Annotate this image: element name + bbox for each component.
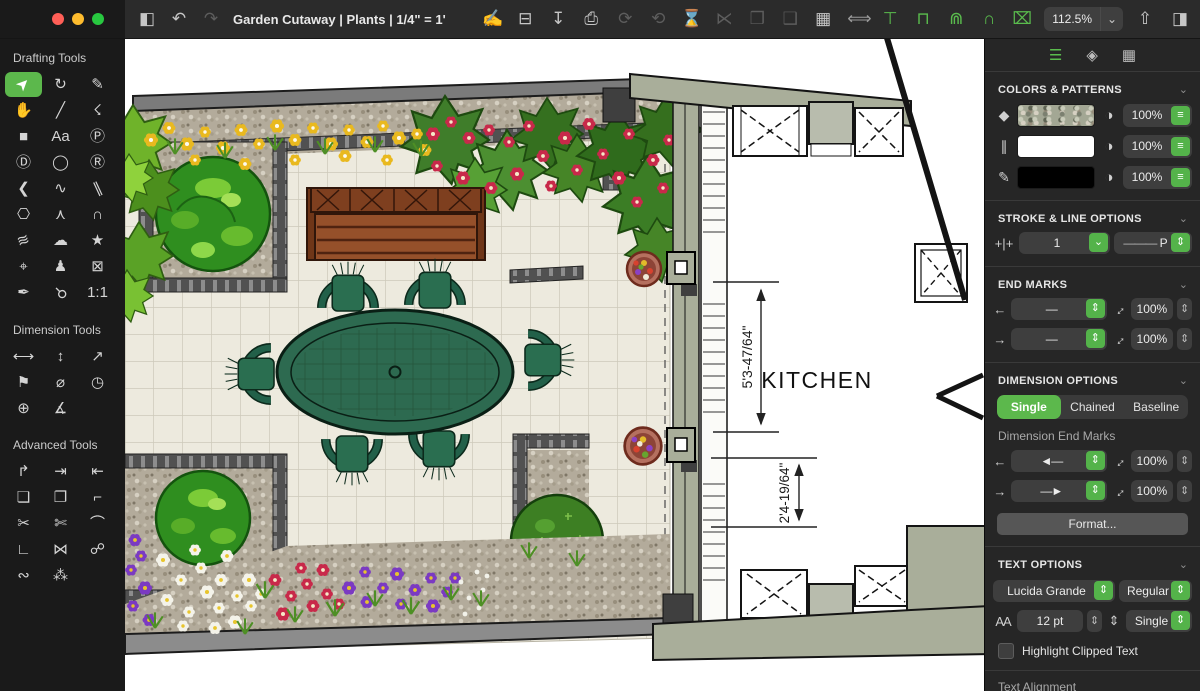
end-marks-header: END MARKS xyxy=(998,279,1067,291)
sidebar-toggle-icon[interactable]: ◧ xyxy=(137,1,157,37)
tool-icon: ⌐ xyxy=(93,490,102,505)
chevron-down-icon[interactable]: ⌄ xyxy=(1179,212,1188,225)
dim-start-mark-row: ← ◄— ⇕ ↔ 100% ⇕ xyxy=(993,449,1192,473)
dim-finish-mark-row: → —► ⇕ ↔ 100% ⇕ xyxy=(993,479,1192,503)
eyedropper-tool[interactable]: ✒ xyxy=(5,280,42,305)
font-family-select[interactable]: Lucida Grande ⇕ xyxy=(993,580,1115,602)
chevron-tool[interactable]: ❮ xyxy=(5,176,42,201)
contrast-icon[interactable]: ◑ xyxy=(1097,169,1121,186)
stepper-icon[interactable]: ⇕ xyxy=(1086,329,1105,348)
zoom-value: 112.5% xyxy=(1044,12,1100,26)
chevron-down-icon[interactable]: ⌄ xyxy=(1100,7,1123,31)
distribute-tool[interactable]: ⁂ xyxy=(42,563,79,588)
tool-icon: ≋ xyxy=(15,231,32,249)
chevron-down-icon[interactable]: ⌄ xyxy=(1089,233,1108,252)
mode-chained[interactable]: Chained xyxy=(1061,395,1125,419)
app-window: ◧↶↷ Garden Cutaway | Plants | 1/4" = 1' … xyxy=(0,0,1200,691)
stepper-icon[interactable]: ⇕ xyxy=(1086,481,1105,500)
tool-icon: ⌒ xyxy=(90,516,105,531)
text-tool[interactable]: Aa xyxy=(42,124,79,149)
dimension-tools-header: Dimension Tools xyxy=(13,323,125,337)
rotated-rect-tool[interactable]: Ⓡ xyxy=(79,150,116,175)
dimension-over-arc-icon[interactable]: ∩ xyxy=(979,1,999,37)
extend-left-tool[interactable]: ⇥ xyxy=(42,459,79,484)
multi-cut-tool[interactable]: ✄ xyxy=(42,511,79,536)
wooden-bench[interactable] xyxy=(307,188,485,260)
highlight-clipped-checkbox[interactable] xyxy=(998,643,1014,659)
tool-icon: ⇤ xyxy=(91,464,104,479)
tool-icon: ☍ xyxy=(90,542,105,557)
scale-field[interactable]: 100% xyxy=(1131,298,1174,320)
start-end-mark-row: ← — ⇕ ↔ 100% ⇕ xyxy=(993,297,1192,321)
color-swatch[interactable] xyxy=(1017,104,1095,127)
tool-icon: Ⓓ xyxy=(16,155,31,170)
resize-icon[interactable]: ↔ xyxy=(1108,450,1130,472)
tool-icon: ⁂ xyxy=(53,568,68,583)
link-tool[interactable]: ☍ xyxy=(79,537,116,562)
scribble-tool[interactable]: ≋ xyxy=(5,228,42,253)
document-title: Garden Cutaway | Plants | 1/4" = 1' xyxy=(233,12,446,27)
tool-icon: ⊕ xyxy=(17,401,30,416)
diameter-dimension-tool[interactable]: ⌀ xyxy=(42,370,79,395)
text-alignment-label: Text Alignment xyxy=(998,680,1187,691)
stepper-icon[interactable]: ⇕ xyxy=(1086,299,1105,318)
undo-icon[interactable]: ↶ xyxy=(169,1,189,37)
grid-icon[interactable]: ▦ xyxy=(813,1,833,37)
tool-icon: ◷ xyxy=(91,375,104,390)
dimension-end-marks-label: Dimension End Marks xyxy=(998,429,1187,443)
tool-icon: ⋏ xyxy=(55,207,66,222)
open-folder-icon[interactable]: ⊟ xyxy=(515,1,535,37)
horizontal-dimension-tool[interactable]: ⟷ xyxy=(5,344,42,369)
rotate-cw-icon[interactable]: ⟳ xyxy=(615,1,635,37)
tool-icon: ■ xyxy=(19,129,28,144)
minimize-button[interactable] xyxy=(72,13,84,25)
redo-icon[interactable]: ↷ xyxy=(201,1,221,37)
star-tool[interactable]: ★ xyxy=(79,228,116,253)
tool-icon: ↕ xyxy=(57,349,65,364)
polygon-tool[interactable]: ⎔ xyxy=(5,202,42,227)
traffic-lights xyxy=(0,0,125,38)
line-width-icon: +|+ xyxy=(993,236,1015,251)
tool-icon: ◯ xyxy=(52,155,69,170)
print-icon[interactable]: ⎙ xyxy=(581,1,601,37)
opacity-field[interactable]: 100% ≡ xyxy=(1123,135,1192,158)
contrast-icon[interactable]: ◑ xyxy=(1097,138,1121,155)
arrow-icon: ← xyxy=(993,454,1007,469)
opacity-field[interactable]: 100% ≡ xyxy=(1123,166,1192,189)
opacity-slider-button[interactable]: ≡ xyxy=(1171,137,1190,156)
scale-field[interactable]: 100% xyxy=(1131,450,1174,472)
tool-icon: ⌀ xyxy=(56,375,65,390)
tool-icon: ❐ xyxy=(54,490,67,505)
zoom-window-button[interactable] xyxy=(92,13,104,25)
tool-icon: ∾ xyxy=(17,568,30,583)
tool-icon: ✎ xyxy=(91,77,104,92)
tool-icon: ⚲ xyxy=(51,283,69,301)
tab-layers[interactable]: ◈ xyxy=(1084,46,1100,64)
inspector-panel: ☰◈▦ COLORS & PATTERNS ⌄ ◆ ◑ 100% ≡ xyxy=(984,38,1200,691)
tool-icon: ⎔ xyxy=(17,207,30,222)
opacity-slider-button[interactable]: ≡ xyxy=(1171,168,1190,187)
text-options-header: TEXT OPTIONS xyxy=(998,559,1082,571)
finish-end-mark-row: → — ⇕ ↔ 100% ⇕ xyxy=(993,327,1192,351)
mirror-tool[interactable]: ⋈ xyxy=(42,537,79,562)
combine-fill-tool[interactable]: ❏ xyxy=(5,485,42,510)
dimension-xy-icon[interactable]: ⌧ xyxy=(1012,1,1032,37)
fillet-tool[interactable]: ⌒ xyxy=(79,511,116,536)
tool-icon: ⌖ xyxy=(19,259,27,274)
line-tool[interactable]: ╱ xyxy=(42,98,79,123)
tool-icon: ★ xyxy=(91,233,104,248)
dimension-text-icon[interactable]: ⊤ xyxy=(880,1,900,37)
insert-vertex-tool[interactable]: ↱ xyxy=(5,459,42,484)
dimension-mark-select[interactable]: ◄— ⇕ xyxy=(1011,450,1107,472)
reshape-tool[interactable]: ✎ xyxy=(79,72,116,97)
ungroup-icon[interactable]: ❑ xyxy=(780,1,800,37)
position-tool[interactable]: ⌖ xyxy=(5,254,42,279)
tool-icon: Aa xyxy=(51,129,69,144)
dimension-line-icon[interactable]: ⟺ xyxy=(847,1,867,37)
extend-right-tool[interactable]: ⇤ xyxy=(79,459,116,484)
droplet-icon: ◆ xyxy=(993,107,1015,124)
stepper-icon[interactable]: ⇕ xyxy=(1177,480,1192,502)
dimension-options-header: DIMENSION OPTIONS xyxy=(998,375,1118,387)
oval-tool[interactable]: ◯ xyxy=(42,150,79,175)
stepper-icon[interactable]: ⇕ xyxy=(1171,611,1190,630)
no-fill-box-tool[interactable]: ⊠ xyxy=(79,254,116,279)
path-node-tool[interactable]: ⌐ xyxy=(79,485,116,510)
fill-row: ◆ ◑ 100% ≡ xyxy=(993,103,1192,127)
rotate-tool[interactable]: ↻ xyxy=(42,72,79,97)
tools-sidebar: Drafting Tools ➤↻✎✋╱☇■AaⓅⒹ◯Ⓡ❮∿∥⎔⋏∩≋☁★⌖♟⊠… xyxy=(0,38,125,691)
combine-outline-tool[interactable]: ❐ xyxy=(42,485,79,510)
mode-baseline[interactable]: Baseline xyxy=(1124,395,1188,419)
tool-icon: ∟ xyxy=(16,542,31,557)
tool-icon: Ⓟ xyxy=(90,129,105,144)
tool-icon: ╱ xyxy=(56,103,65,118)
end-mark-select[interactable]: — ⇕ xyxy=(1011,328,1107,350)
group-icon[interactable]: ❒ xyxy=(747,1,767,37)
hatch-row: ∥ ◑ 100% ≡ xyxy=(993,134,1192,158)
tool-icon: ❮ xyxy=(17,181,30,196)
arrow-icon: → xyxy=(993,484,1007,499)
line-spacing-select[interactable]: Single ⇕ xyxy=(1126,610,1192,632)
color-swatch[interactable] xyxy=(1017,166,1095,189)
stepper-icon[interactable]: ⇕ xyxy=(1087,610,1102,632)
angled-dimension-tool[interactable]: ⚑ xyxy=(5,370,42,395)
tool-icon: ↱ xyxy=(17,464,30,479)
flip-vertical-icon[interactable]: ⌛ xyxy=(681,1,701,37)
tool-icon: ∩ xyxy=(92,207,103,222)
flower-pot-1[interactable] xyxy=(627,252,661,286)
kitchen-label[interactable]: KITCHEN xyxy=(761,367,872,393)
contrast-icon[interactable]: ◑ xyxy=(1097,107,1121,124)
tool-icon: ∿ xyxy=(54,181,67,196)
flower-pot-2[interactable] xyxy=(625,428,662,465)
dimension-arc-icon[interactable]: ⊓ xyxy=(913,1,933,37)
tool-icon: ∥ xyxy=(91,180,104,197)
scale-field[interactable]: 100% xyxy=(1131,328,1174,350)
tool-icon: ✄ xyxy=(54,516,67,531)
tool-icon: ✒ xyxy=(17,285,30,300)
tool-icon: ⟷ xyxy=(13,349,35,364)
line-spacing-icon: ⇕ xyxy=(1106,613,1122,629)
flip-horizontal-icon[interactable]: ⋉ xyxy=(714,1,734,37)
tool-icon: ✋ xyxy=(14,103,33,118)
dimension-double-arc-icon[interactable]: ⋒ xyxy=(946,1,966,37)
highlight-clipped-label: Highlight Clipped Text xyxy=(1022,644,1138,658)
stepper-icon[interactable]: ⇕ xyxy=(1171,581,1190,600)
opacity-slider-button[interactable]: ≡ xyxy=(1171,106,1190,125)
stepper-icon[interactable]: ⇕ xyxy=(1171,233,1190,252)
dimension-mark-select[interactable]: —► ⇕ xyxy=(1011,480,1107,502)
chevron-down-icon[interactable]: ⌄ xyxy=(1179,278,1188,291)
stepper-icon[interactable]: ⇕ xyxy=(1094,581,1113,600)
stepper-icon[interactable]: ⇕ xyxy=(1086,451,1105,470)
stepper-icon[interactable]: ⇕ xyxy=(1177,328,1192,350)
text-box-tool[interactable]: Ⓟ xyxy=(79,124,116,149)
font-weight-select[interactable]: Regular ⇕ xyxy=(1119,580,1192,602)
stroke-options-header: STROKE & LINE OPTIONS xyxy=(998,213,1142,225)
rectangle-tool[interactable]: ■ xyxy=(5,124,42,149)
radius-dimension-tool[interactable]: ◷ xyxy=(79,370,116,395)
tool-icon: ∡ xyxy=(54,401,67,416)
parallel-line-tool[interactable]: ∥ xyxy=(79,176,116,201)
tool-icon: ⋈ xyxy=(53,542,68,557)
stepper-icon[interactable]: ⇕ xyxy=(1177,450,1192,472)
resize-icon[interactable]: ↔ xyxy=(1108,298,1130,320)
inspector-toggle-icon[interactable]: ◨ xyxy=(1170,1,1190,37)
blob-tool[interactable]: ☁ xyxy=(42,228,79,253)
magnifier-tool[interactable]: ⚲ xyxy=(42,280,79,305)
dimension-label-gap[interactable]: 2'4-19/64" xyxy=(777,462,792,523)
format-button[interactable]: Format... xyxy=(997,513,1188,535)
drawing-canvas[interactable]: 5'3-47/64" 2'4-19/64" KITCHEN xyxy=(125,38,985,691)
tool-icon: ♟ xyxy=(54,259,67,274)
chevron-down-icon[interactable]: ⌄ xyxy=(1179,374,1188,387)
tool-icon: 1:1 xyxy=(87,285,108,300)
drafting-tools-header: Drafting Tools xyxy=(13,51,125,65)
scale-field[interactable]: 100% xyxy=(1131,480,1174,502)
font-size-field[interactable]: 12 pt xyxy=(1017,610,1083,632)
arrow-icon: ← xyxy=(993,302,1007,317)
actual-size-tool[interactable]: 1:1 xyxy=(79,280,116,305)
tool-icon: Ⓡ xyxy=(90,155,105,170)
opacity-field[interactable]: 100% ≡ xyxy=(1123,104,1192,127)
import-icon[interactable]: ↧ xyxy=(548,1,568,37)
share-icon[interactable]: ⇧ xyxy=(1135,1,1155,37)
tab-library[interactable]: ▦ xyxy=(1120,46,1138,64)
curve-tool[interactable]: ∿ xyxy=(42,176,79,201)
center-dimension-tool[interactable]: ⊕ xyxy=(5,396,42,421)
stepper-icon[interactable]: ⇕ xyxy=(1177,298,1192,320)
angle-dimension-tool[interactable]: ∡ xyxy=(42,396,79,421)
rotate-ccw-icon[interactable]: ⟲ xyxy=(648,1,668,37)
dimension-mode-segment: SingleChainedBaseline xyxy=(997,395,1188,419)
close-button[interactable] xyxy=(52,13,64,25)
advanced-tools-header: Advanced Tools xyxy=(13,438,125,452)
arc-tool[interactable]: ∩ xyxy=(79,202,116,227)
polyline-tool[interactable]: ☇ xyxy=(79,98,116,123)
pencil-icon: ✎ xyxy=(993,169,1015,186)
tool-icon: ⇥ xyxy=(54,464,67,479)
dimension-label-vertical[interactable]: 5'3-47/64" xyxy=(739,326,755,389)
tool-icon: ❏ xyxy=(17,490,30,505)
tool-icon: ☇ xyxy=(93,103,102,118)
tool-icon: ⚑ xyxy=(17,375,30,390)
tool-icon: ↻ xyxy=(54,77,67,92)
font-size-icon: AA xyxy=(993,614,1013,629)
color-swatch[interactable] xyxy=(1017,135,1095,158)
pen-row: ✎ ◑ 100% ≡ xyxy=(993,165,1192,189)
stamp-tool[interactable]: ♟ xyxy=(42,254,79,279)
hatch-lines-icon: ∥ xyxy=(993,138,1015,155)
chevron-down-icon[interactable]: ⌄ xyxy=(1179,558,1188,571)
tab-style[interactable]: ☰ xyxy=(1047,46,1064,64)
chevron-down-icon[interactable]: ⌄ xyxy=(1179,83,1188,96)
tool-icon: ✂ xyxy=(17,516,30,531)
tool-icon: ↗ xyxy=(91,349,104,364)
vertical-dimension-tool[interactable]: ↕ xyxy=(42,344,79,369)
select-tool[interactable]: ➤ xyxy=(5,72,42,97)
tool-icon: ➤ xyxy=(13,74,34,95)
stroke-width-field[interactable]: 1 ⌄ xyxy=(1019,232,1110,254)
resize-icon[interactable]: ↔ xyxy=(1108,328,1130,350)
chamfer-tool[interactable]: ∟ xyxy=(5,537,42,562)
tool-icon: ⊠ xyxy=(91,259,104,274)
arrow-icon: → xyxy=(993,332,1007,347)
bezier-tool[interactable]: ⋏ xyxy=(42,202,79,227)
titlebar: ◧↶↷ Garden Cutaway | Plants | 1/4" = 1' … xyxy=(0,0,1200,39)
mode-single[interactable]: Single xyxy=(997,395,1061,419)
end-mark-select[interactable]: — ⇕ xyxy=(1011,298,1107,320)
new-document-icon[interactable]: ✍ xyxy=(482,1,502,37)
pan-tool[interactable]: ✋ xyxy=(5,98,42,123)
tool-icon: ☁ xyxy=(53,233,68,248)
zoom-control[interactable]: 112.5% ⌄ xyxy=(1044,7,1123,31)
chain-tool[interactable]: ∾ xyxy=(5,563,42,588)
circle-diameter-tool[interactable]: Ⓓ xyxy=(5,150,42,175)
diagonal-dimension-tool[interactable]: ↗ xyxy=(79,344,116,369)
line-style-select[interactable]: ——— P ⇕ xyxy=(1114,232,1192,254)
colors-patterns-header: COLORS & PATTERNS xyxy=(998,84,1122,96)
resize-icon[interactable]: ↔ xyxy=(1108,480,1130,502)
cut-tool[interactable]: ✂ xyxy=(5,511,42,536)
garden-plan-drawing[interactable]: 5'3-47/64" 2'4-19/64" KITCHEN xyxy=(125,38,985,691)
